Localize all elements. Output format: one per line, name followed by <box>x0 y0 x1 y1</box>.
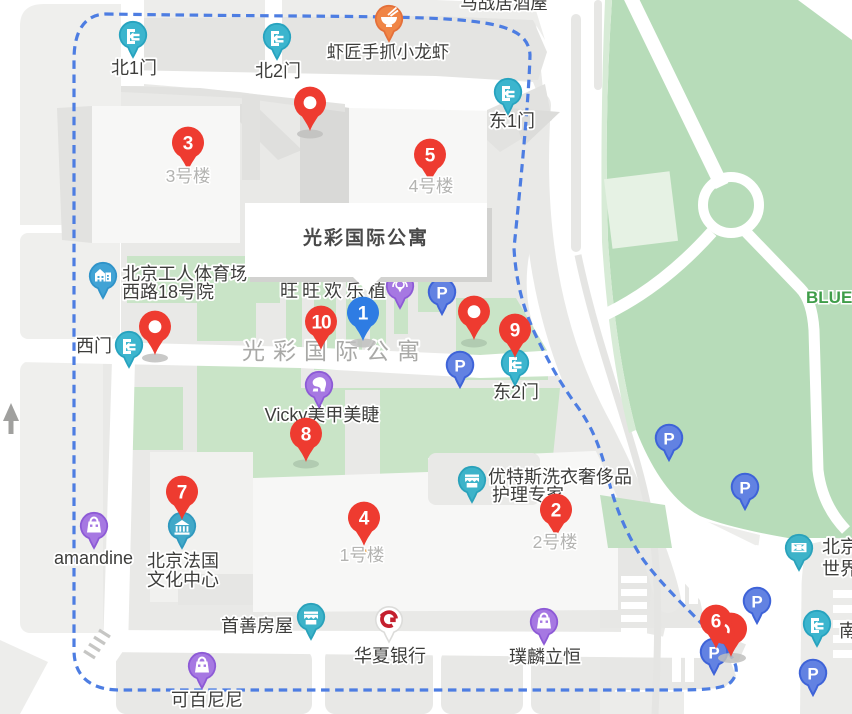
svg-text:光彩国际公寓: 光彩国际公寓 <box>242 338 428 364</box>
svg-text:1号楼: 1号楼 <box>340 545 385 565</box>
svg-text:9: 9 <box>510 321 521 342</box>
svg-text:3: 3 <box>183 134 194 155</box>
svg-text:璞麟立恒: 璞麟立恒 <box>509 647 581 667</box>
svg-text:东1门: 东1门 <box>489 111 535 131</box>
svg-text:北京法国: 北京法国 <box>147 551 219 571</box>
svg-text:首善房屋: 首善房屋 <box>221 616 293 636</box>
svg-text:南: 南 <box>839 621 852 641</box>
svg-text:Vicky美甲美睫: Vicky美甲美睫 <box>265 405 380 425</box>
svg-text:北1门: 北1门 <box>111 58 157 78</box>
svg-text:2: 2 <box>551 501 562 522</box>
svg-text:2号楼: 2号楼 <box>533 532 578 552</box>
svg-text:华夏银行: 华夏银行 <box>354 646 426 666</box>
svg-text:西路18号院: 西路18号院 <box>122 282 214 302</box>
svg-text:1: 1 <box>358 304 369 325</box>
svg-text:光彩国际公寓: 光彩国际公寓 <box>302 226 429 249</box>
svg-text:虾匠手抓小龙虾: 虾匠手抓小龙虾 <box>327 42 450 62</box>
svg-text:7: 7 <box>177 483 188 504</box>
svg-text:8: 8 <box>301 425 312 446</box>
svg-text:4: 4 <box>359 509 370 530</box>
svg-text:文化中心: 文化中心 <box>147 570 219 590</box>
svg-text:马战居酒屋: 马战居酒屋 <box>460 0 548 13</box>
svg-text:BLUE: BLUE <box>806 288 852 307</box>
svg-text:北2门: 北2门 <box>255 61 301 81</box>
svg-text:北京: 北京 <box>822 537 852 557</box>
svg-text:北京工人体育场: 北京工人体育场 <box>122 264 248 284</box>
svg-text:可百尼尼: 可百尼尼 <box>171 690 243 710</box>
svg-text:世界: 世界 <box>822 559 852 579</box>
svg-text:10: 10 <box>311 313 331 334</box>
svg-text:5: 5 <box>425 146 436 167</box>
svg-text:优特斯洗衣奢侈品: 优特斯洗衣奢侈品 <box>488 467 632 487</box>
svg-text:3号楼: 3号楼 <box>166 166 211 186</box>
svg-text:4号楼: 4号楼 <box>409 176 454 196</box>
svg-text:amandine: amandine <box>54 548 133 568</box>
svg-text:6: 6 <box>711 612 722 633</box>
svg-text:西门: 西门 <box>76 336 112 356</box>
